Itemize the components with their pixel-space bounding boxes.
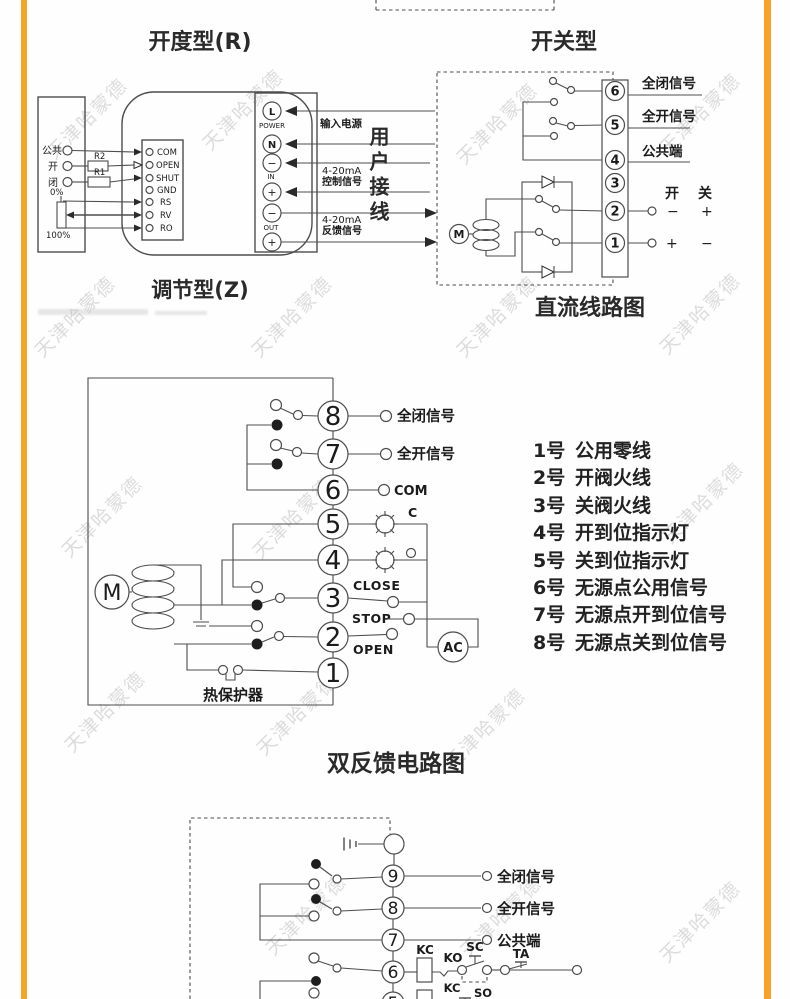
power-label: POWER [259,122,285,130]
note-text: 开阀火线 [575,467,651,489]
note-text: 开到位指示灯 [575,522,689,544]
open-column-header: 开 [665,186,679,202]
ac-feedback-diagram-partial: 9 8 7 6 5 全闭信号 全开信号 公共端 KC KO SC TA [180,800,790,999]
com-label: COM [394,484,428,499]
user-wiring-label: 用户接线 [364,126,393,226]
terminal-strip: 6 5 4 3 2 1 [602,80,628,277]
document-page: { "watermark": {"text": "天津哈蒙德"}, "color… [0,0,790,999]
caption-feedback-diagram: 双反馈电路图 [296,744,496,778]
terminal-1: 1 [610,237,619,252]
outer-wiring [88,378,333,705]
ta-contact-label: TA [513,947,530,961]
full-open-label: 全开信号 [641,108,696,125]
note-text: 无源点公用信号 [575,577,708,599]
sc-button-label: SC [466,940,484,954]
terminal-7: 7 [325,440,342,470]
feedback-signal-label: 4-20mA [322,215,361,226]
external-labels: 全闭信号 全开信号 公共端 开 关 − + + − [628,75,713,252]
full-open-label: 全开信号 [496,900,555,918]
terminal-l: L [269,107,276,118]
block-terminal-label: RO [160,224,173,234]
row2-minus: − [667,204,679,220]
block-terminal-label: OPEN [156,161,180,171]
so-contact-label: SO [474,986,492,999]
terminal-6: 6 [325,476,342,506]
terminal-label: 公共 [42,145,62,157]
note-number: 4号 [533,520,575,547]
terminal-6: 6 [388,963,399,983]
note-number: 7号 [533,602,575,629]
block-terminal-label: GND [157,186,177,196]
ground-terminal [344,834,404,854]
note-row: 7号无源点开到位信号 [533,602,727,629]
note-number: 3号 [533,493,575,520]
terminal-1: 1 [325,659,342,689]
note-number: 1号 [533,438,575,465]
terminal-6: 6 [610,85,619,100]
note-text: 公用零线 [575,440,651,462]
terminal-n: N [268,140,276,151]
full-close-label: 全闭信号 [396,407,455,425]
note-row: 4号开到位指示灯 [533,520,727,547]
motor-and-coil: M [450,220,500,251]
block-terminal-label: RV [160,211,171,221]
kc-contact-label: KC [444,981,461,995]
thermal-protector-label: 热保护器 [203,686,264,704]
lamp-o-label [407,549,416,558]
control-block-terminals: COM OPEN SHUT GND RS RV RO [146,148,180,234]
feedback-circuit-diagram: M 8 7 6 5 4 3 2 1 [80,370,560,715]
in-label: IN [267,173,274,181]
control-signal-label: 控制信号 [322,175,362,188]
terminal-2: 2 [610,205,619,220]
dc-wiring-diagram: M 6 5 4 3 2 1 全闭信号 全开信号 公共端 开 关 [420,60,790,330]
terminal-in-plus: + [267,186,276,199]
note-row: 6号无源点公用信号 [533,575,727,602]
switch-clusters [174,400,318,650]
note-row: 5号关到位指示灯 [533,548,727,575]
block-terminal-label: COM [157,148,177,158]
feedback-signal-label: 反馈信号 [322,224,362,237]
actuator-dashed-outline [437,72,613,285]
note-row: 2号开阀火线 [533,465,727,492]
note-number: 2号 [533,465,575,492]
out-label: OUT [264,224,280,232]
terminal-5: 5 [388,994,399,999]
limit-switches [523,78,605,161]
terminal-5: 5 [325,510,342,540]
motor-contacts-and-diodes [486,176,605,278]
switches [260,859,382,999]
dashed-outline [190,818,390,999]
erased-text-smudge [155,311,207,315]
note-number: 8号 [533,630,575,657]
motor-label: M [103,581,122,606]
full-close-label: 全闭信号 [641,75,696,92]
terminal-7: 7 [388,931,399,951]
thermal-protector: 热保护器 [187,644,318,704]
caption-z-type: 调节型(Z) [120,274,280,304]
kc-relay-label: KC [416,943,434,957]
external-wiring: 输入电源 4-20mA 控制信号 4-20mA 反馈信号 [281,106,437,247]
relay-logic: KC KO SC TA KC SO [404,940,582,999]
terminal-4: 4 [325,546,342,576]
terminal-label: 开 [48,162,58,173]
terminal-3: 3 [610,177,619,192]
motor-label: M [454,228,465,241]
note-row: 3号关阀火线 [533,493,727,520]
terminal-2: 2 [325,623,342,653]
note-row: 1号公用零线 [533,438,727,465]
close-label: CLOSE [353,578,400,593]
pot-bottom-label: 100% [46,231,70,241]
common-label: 公共端 [642,143,683,160]
note-text: 无源点关到位信号 [575,632,727,654]
row1-minus: − [701,236,713,252]
supply-label: 输入电源 [320,117,362,130]
block-terminal-label: SHUT [156,174,180,184]
note-number: 5号 [533,548,575,575]
block-terminal-label: RS [160,198,171,208]
row1-plus: + [666,236,678,252]
terminal-out-plus: + [267,236,276,249]
row2-plus: + [701,204,713,220]
dashed-box-remnant [370,0,570,16]
terminal-8: 8 [388,899,399,919]
title-r-type: 开度型(R) [120,24,280,56]
control-signal-label: 4-20mA [322,166,361,177]
terminal-column: 8 7 6 5 4 3 2 1 [318,401,348,689]
right-signals: 全闭信号 全开信号 COM C CLOSE STOP OPEN AC [348,407,478,662]
erased-text-smudge [38,309,148,315]
terminal-5: 5 [610,119,619,134]
signal-outputs: 全闭信号 全开信号 公共端 [404,868,555,950]
terminal-9: 9 [388,867,399,887]
terminal-notes-list: 1号公用零线 2号开阀火线 3号关阀火线 4号开到位指示灯 5号关到位指示灯 6… [533,438,727,657]
input-terminals: 公共 开 闭 0% 100% [42,145,72,241]
note-number: 6号 [533,575,575,602]
terminal-3: 3 [325,584,342,614]
ko-contact-label: KO [444,951,463,965]
full-close-label: 全闭信号 [496,868,555,886]
note-text: 关阀火线 [575,495,651,517]
resistors: R2 R1 [88,152,110,187]
power-terminal-strip: L POWER N − IN + − OUT + [259,102,285,251]
terminal-8: 8 [325,402,342,432]
terminal-column: 9 8 7 6 5 [382,854,404,999]
terminal-in-minus: − [267,157,276,170]
note-text: 关到位指示灯 [575,550,689,572]
left-accent-bar [21,0,27,999]
lamp-c-label: C [408,505,417,520]
motor-and-coil: M [95,565,209,629]
full-open-label: 全开信号 [396,445,455,463]
note-row: 8号无源点关到位信号 [533,630,727,657]
terminal-4: 4 [610,154,619,169]
title-switch-type: 开关型 [499,24,629,56]
note-text: 无源点开到位信号 [575,604,727,626]
open-label: OPEN [353,642,394,657]
ac-source-label: AC [443,641,463,656]
terminal-out-minus: − [267,207,276,220]
close-column-header: 关 [698,185,712,202]
